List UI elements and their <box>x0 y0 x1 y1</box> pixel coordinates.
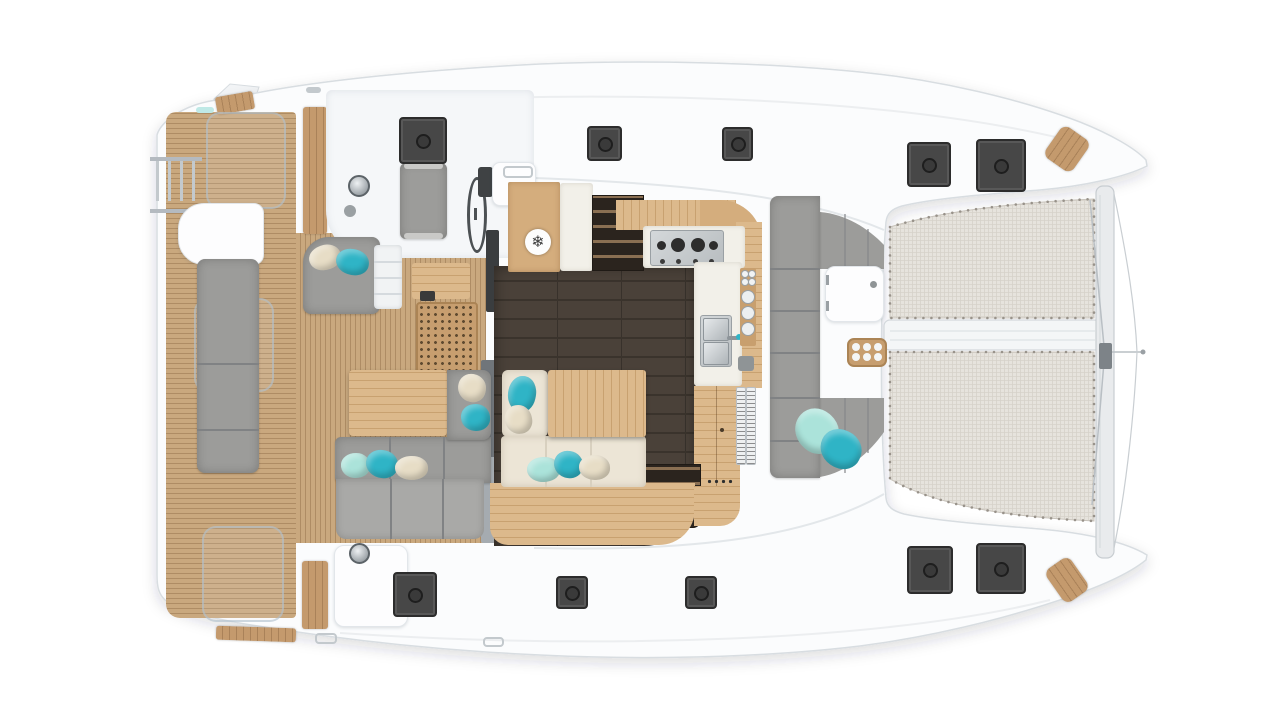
ladder-rung <box>156 161 159 201</box>
helm-wheel-hub <box>474 208 477 220</box>
cushion-seam <box>770 397 820 399</box>
louver-vent <box>736 387 746 465</box>
louver-vent <box>746 387 756 465</box>
plate-large <box>741 322 755 336</box>
glass-rail-aft-top <box>206 112 286 209</box>
ladder-rung <box>192 161 195 201</box>
cushion-seam <box>197 363 259 365</box>
deck-filler-cap <box>349 543 370 564</box>
snowflake-icon: ❄ <box>525 229 551 255</box>
stern-seat-module <box>178 203 264 265</box>
deck-hatch <box>976 139 1026 192</box>
transom-handle <box>315 633 337 644</box>
deck-hatch <box>976 543 1026 594</box>
bridle-apex <box>1141 350 1146 355</box>
deck-hatch <box>556 576 588 609</box>
bow-crossbeam <box>1096 186 1114 558</box>
trampoline-top <box>890 199 1094 318</box>
ladder-rung <box>168 161 171 201</box>
deck-hatch <box>587 126 622 161</box>
cupholder <box>852 353 860 361</box>
table-latch <box>870 281 877 288</box>
glass-rail-aft-bottom <box>202 526 284 622</box>
transom-step-bottom <box>216 626 296 643</box>
cushion-seam <box>442 479 444 539</box>
cockpit-sofa-seat <box>336 479 484 539</box>
deck-hatch <box>722 127 753 161</box>
galley-sink <box>700 315 732 367</box>
cushion-seam <box>443 437 445 483</box>
burner <box>709 241 718 250</box>
sink-basin <box>703 318 729 341</box>
cockpit-table <box>349 370 447 436</box>
cooktop <box>650 230 724 266</box>
step-edge <box>374 277 402 279</box>
trampoline-bottom <box>890 352 1094 521</box>
cupholder <box>852 343 860 351</box>
plate-large <box>741 290 755 304</box>
cupholder <box>863 343 871 351</box>
cabinet-handle <box>720 428 724 432</box>
galley-counter-left <box>560 183 593 271</box>
appliance-rack <box>740 268 756 346</box>
cushion-seam <box>197 429 259 431</box>
stern-bench <box>197 259 259 473</box>
deck-hatch <box>685 576 717 609</box>
step-edge <box>374 293 402 295</box>
cupholder <box>874 353 882 361</box>
grab-handle <box>503 166 533 178</box>
winch <box>348 175 370 197</box>
rattan-grate-locker <box>416 302 478 374</box>
cushion-seam <box>770 310 820 312</box>
table-hinge <box>826 275 829 285</box>
saloon-platform <box>490 483 695 545</box>
plate <box>748 278 756 286</box>
burner <box>657 241 666 250</box>
hinge-hardware <box>706 479 734 484</box>
helm-seat <box>400 163 447 239</box>
plate-large <box>741 306 755 320</box>
burner <box>671 238 685 252</box>
cabinet-door-seam <box>716 386 717 486</box>
bridle-fitting <box>1099 343 1112 369</box>
cupholder <box>874 343 882 351</box>
cushion-seam <box>770 352 820 354</box>
forestay-bridle <box>1114 194 1137 548</box>
deck-hatch <box>399 117 447 164</box>
cupholder <box>863 353 871 361</box>
stove-knob <box>660 259 665 264</box>
cushion-seam <box>770 268 820 270</box>
step-edge <box>374 261 402 263</box>
radio-unit <box>420 291 435 301</box>
forward-table <box>825 266 884 322</box>
catamaran-floorplan: ❄ <box>0 0 1280 720</box>
table-hinge <box>826 301 829 311</box>
stove-knob <box>676 259 681 264</box>
pillow-cream <box>578 454 610 481</box>
side-steps <box>374 245 402 309</box>
saloon-table <box>548 370 646 437</box>
snowflake-glyph: ❄ <box>531 234 544 250</box>
helm-seat-armrest <box>404 233 443 239</box>
plate <box>748 270 756 278</box>
side-deck-plank-top <box>303 107 327 234</box>
burner <box>691 238 705 252</box>
ladder-rung <box>180 161 183 201</box>
engine-throttles <box>478 167 493 197</box>
cushion-seam <box>390 479 392 539</box>
cupholder-tray <box>847 338 887 367</box>
side-deck-plank-bottom <box>302 561 328 629</box>
fridge-freezer <box>508 182 560 272</box>
deck-hatch <box>907 546 953 594</box>
deck-fitting <box>344 205 356 217</box>
trampoline-spine <box>884 320 1100 350</box>
galley-small-hatch <box>738 356 754 371</box>
stern-light <box>196 107 214 113</box>
saloon-floor-wood-right <box>694 486 740 526</box>
cleat <box>306 87 321 93</box>
sink-basin <box>703 342 729 365</box>
deck-hatch <box>907 142 951 187</box>
deck-hatch <box>393 572 437 617</box>
transom-handle <box>483 637 504 647</box>
